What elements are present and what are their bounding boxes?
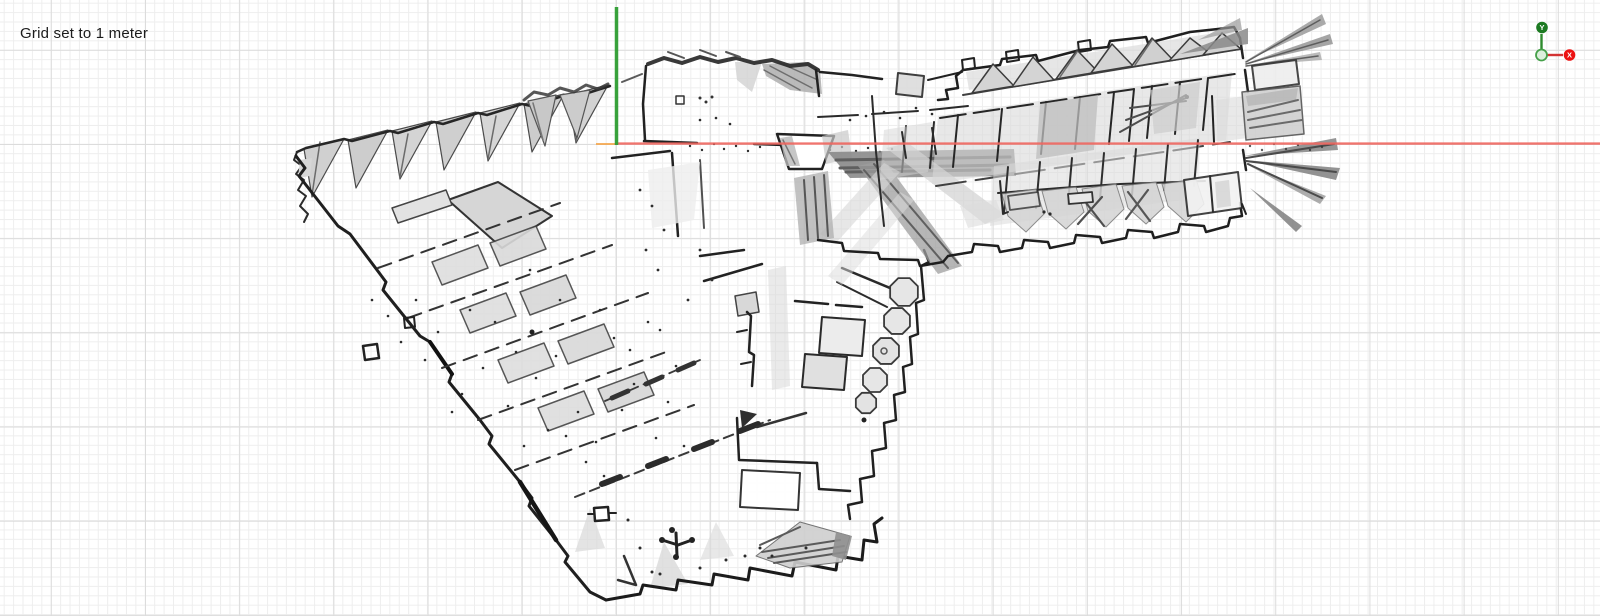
map-shape <box>1252 60 1299 90</box>
map-shape <box>622 74 642 82</box>
map-noise-dot <box>547 429 550 432</box>
map-noise-dot <box>603 475 606 478</box>
map-noise-dot <box>627 519 630 522</box>
map-shape <box>757 413 806 427</box>
map-noise-dot <box>387 315 390 318</box>
map-noise-dot <box>659 573 662 576</box>
map-shape <box>1250 188 1302 232</box>
map-noise-dot <box>515 351 518 354</box>
map-shape <box>694 442 712 449</box>
map-shape <box>836 305 862 307</box>
map-noise-dot <box>613 337 616 340</box>
map-shape <box>392 190 452 223</box>
grid-scale-label: Grid set to 1 meter <box>20 25 148 42</box>
map-noise-dot <box>1285 148 1287 150</box>
map-noise-dot <box>915 107 918 110</box>
map-noise-dot <box>647 321 650 324</box>
map-shape <box>828 192 914 285</box>
map-noise-dot <box>424 359 427 362</box>
map-shape <box>520 482 556 540</box>
map-shape <box>689 537 695 543</box>
map-shape <box>520 275 576 315</box>
map-noise-dot <box>759 146 761 148</box>
map-shape <box>594 507 609 521</box>
map-shape <box>1245 70 1248 92</box>
map-shape <box>676 533 677 556</box>
map-noise-dot <box>715 117 718 120</box>
map-noise-dot <box>529 269 532 272</box>
map-noise-dot <box>689 145 691 147</box>
map-noise-dot <box>659 329 662 332</box>
map-shape <box>741 362 751 364</box>
map-noise-dot <box>744 555 747 558</box>
map-noise-dot <box>705 101 708 104</box>
map-noise-dot <box>699 567 702 570</box>
gizmo-origin-circle[interactable] <box>1536 50 1547 61</box>
map-noise-dot <box>699 249 702 252</box>
map-noise-dots <box>699 107 934 126</box>
map-shape <box>768 266 790 390</box>
map-shape <box>863 368 887 392</box>
map-noise-dot <box>1321 146 1323 148</box>
map-noise-dot <box>805 547 808 550</box>
map-noise-dot <box>867 147 869 149</box>
map-shape <box>659 537 665 543</box>
map-shape <box>648 162 700 228</box>
map-shape <box>432 245 488 285</box>
map-noise-dot <box>469 309 472 312</box>
map-noise-dot <box>535 377 538 380</box>
map-noise-dot <box>849 119 852 122</box>
map-shape <box>872 111 918 114</box>
map-noise-dot <box>699 119 702 122</box>
map-shape <box>700 160 704 228</box>
map-shape <box>430 342 452 374</box>
gizmo-x-axis-ball-label: X <box>1567 51 1572 60</box>
map-noise-dot <box>683 445 686 448</box>
map-shape <box>558 324 614 364</box>
map-shape <box>602 477 620 484</box>
map-noise-dot <box>461 393 464 396</box>
map-shape <box>726 52 740 57</box>
map-shape <box>740 470 800 510</box>
map-noise-dot <box>899 117 902 120</box>
map-shape <box>890 278 918 306</box>
map-shape <box>700 522 734 560</box>
map-noise-dot <box>651 205 654 208</box>
map-shape <box>896 73 924 97</box>
map-shape <box>820 72 882 79</box>
map-shape <box>648 459 666 466</box>
map-noise-dot <box>667 401 670 404</box>
map-noise-dot <box>655 437 658 440</box>
map-shape <box>802 354 847 390</box>
map-noise-dot <box>711 279 714 282</box>
map-noise-dot <box>865 115 868 118</box>
map-shape <box>930 106 968 110</box>
map-shape <box>862 418 867 423</box>
map-noise-dot <box>482 367 485 370</box>
map-shape <box>873 338 899 364</box>
map-shape <box>747 312 754 386</box>
map-noise-dot <box>629 349 632 352</box>
map-noise-dots <box>699 96 714 104</box>
map-shape <box>296 156 606 600</box>
map-noise-dot <box>371 299 374 302</box>
map-shape <box>880 122 932 180</box>
map-noise-dot <box>523 445 526 448</box>
map-noise-dot <box>1261 149 1263 151</box>
map-noise-dot <box>451 411 454 414</box>
map-noise-dot <box>577 411 580 414</box>
map-shape <box>700 250 744 256</box>
map-noise-dot <box>657 269 660 272</box>
map-noise-dot <box>1048 212 1051 215</box>
map-noise-dot <box>675 365 678 368</box>
map-noise-dot <box>1249 145 1251 147</box>
map-shape <box>530 330 535 335</box>
map-shape <box>668 52 684 58</box>
map-shape <box>962 58 975 70</box>
map-noise-dot <box>494 321 497 324</box>
map-noise-dot <box>645 249 648 252</box>
map-noise-dot <box>725 559 728 562</box>
map-noise-dot <box>663 229 666 232</box>
map-noise-dot <box>723 148 725 150</box>
map-shape <box>348 130 388 188</box>
map-shape <box>1150 82 1200 134</box>
map-noise-dot <box>415 299 418 302</box>
gizmo-y-axis-ball-label: Y <box>1539 23 1544 32</box>
map-noise-dot <box>735 145 737 147</box>
map-noise-dot <box>883 111 886 114</box>
map-shape <box>460 293 516 333</box>
map-shape <box>1068 192 1093 204</box>
map-noise-dot <box>699 97 702 100</box>
map-shape <box>819 317 865 356</box>
map-shape <box>884 308 910 334</box>
map-shape <box>498 343 554 383</box>
map-shape <box>737 330 747 332</box>
map-shape <box>669 527 675 533</box>
map-noise-dot <box>507 405 510 408</box>
map-noise-dot <box>747 150 749 152</box>
3d-viewport[interactable]: Grid set to 1 meter YX <box>0 0 1600 616</box>
map-shape <box>673 554 679 560</box>
map-shape <box>795 301 828 304</box>
map-noise-dot <box>639 189 642 192</box>
map-shape <box>735 62 762 92</box>
map-shape <box>676 96 684 104</box>
map-noise-dot <box>931 113 934 116</box>
map-noise-dot <box>595 441 598 444</box>
map-shape <box>704 264 762 281</box>
slam-map-canvas[interactable]: YX <box>0 0 1600 616</box>
map-noise-dot <box>1042 210 1045 213</box>
map-noise-dot <box>633 383 636 386</box>
map-shape <box>618 556 636 585</box>
map-shape <box>363 344 379 360</box>
map-shape <box>818 115 858 117</box>
map-shape <box>1244 138 1338 156</box>
map-shape <box>538 391 594 431</box>
map-noise-dot <box>621 409 624 412</box>
map-noise-dot <box>565 435 568 438</box>
map-shape <box>856 393 876 413</box>
map-noise-dot <box>701 149 703 151</box>
map-shape <box>643 66 646 140</box>
map-shape <box>612 151 670 158</box>
map-noise-dot <box>1309 149 1311 151</box>
map-noise-dot <box>771 555 774 558</box>
map-noise-dot <box>651 571 654 574</box>
map-shape <box>1036 95 1098 159</box>
map-shape <box>1008 192 1040 210</box>
map-noise-dot <box>559 299 562 302</box>
map-shape <box>817 463 850 491</box>
map-noise-dot <box>555 355 558 358</box>
map-noise-dot <box>639 547 642 550</box>
map-noise-dot <box>437 331 440 334</box>
map-noise-dot <box>400 341 403 344</box>
map-shape <box>678 363 694 370</box>
map-noise-dot <box>759 547 762 550</box>
map-noise-dot <box>687 299 690 302</box>
map-shape <box>837 282 887 307</box>
map-noise-dot <box>599 309 602 312</box>
map-shape <box>1215 180 1231 208</box>
map-shape <box>700 50 716 56</box>
map-shape <box>1243 150 1246 170</box>
map-shape <box>646 377 662 384</box>
map-noise-dot <box>729 123 732 126</box>
map-noise-dot <box>711 96 714 99</box>
map-noise-dot <box>585 461 588 464</box>
